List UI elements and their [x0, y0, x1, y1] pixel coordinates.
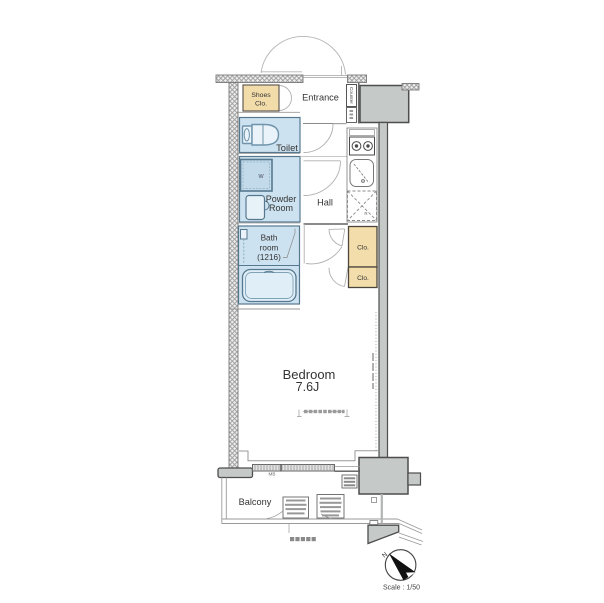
svg-text:Room: Room	[269, 203, 293, 213]
svg-text:Shoes: Shoes	[251, 92, 271, 99]
svg-text:Clo.: Clo.	[357, 275, 369, 282]
svg-text:Balcony: Balcony	[239, 497, 272, 507]
svg-text:7.6J: 7.6J	[296, 380, 320, 394]
svg-text:(1216): (1216)	[257, 253, 281, 262]
svg-text:Entrance: Entrance	[302, 93, 339, 103]
svg-text:Hall: Hall	[317, 198, 333, 208]
svg-text:Clo.: Clo.	[255, 101, 267, 108]
svg-text:MB: MB	[269, 472, 276, 477]
svg-text:Counter: Counter	[348, 87, 354, 104]
svg-text:Toilet: Toilet	[276, 143, 298, 153]
svg-text:Bath: Bath	[261, 234, 278, 243]
svg-text:room: room	[260, 244, 279, 253]
svg-text:Scale : 1/50: Scale : 1/50	[383, 585, 420, 592]
svg-text:Clo.: Clo.	[357, 245, 369, 252]
